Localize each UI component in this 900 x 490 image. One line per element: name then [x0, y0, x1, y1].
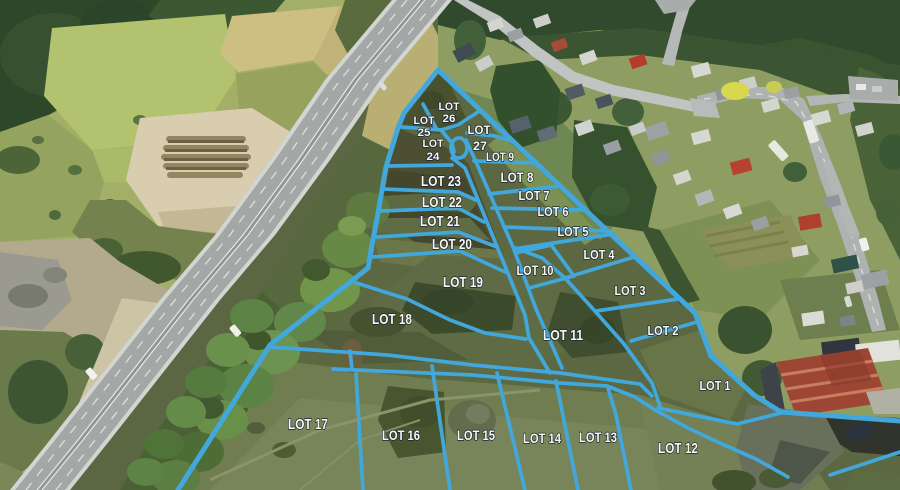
svg-text:LOT 9: LOT 9 — [486, 150, 514, 164]
svg-text:LOT 11: LOT 11 — [543, 327, 583, 344]
svg-text:LOT 19: LOT 19 — [443, 274, 483, 291]
svg-text:LOT: LOT — [423, 138, 444, 150]
svg-text:LOT 8: LOT 8 — [501, 169, 534, 185]
svg-text:LOT 17: LOT 17 — [288, 416, 328, 433]
svg-text:LOT 1: LOT 1 — [700, 378, 731, 393]
svg-text:LOT: LOT — [468, 123, 492, 137]
svg-text:LOT 20: LOT 20 — [432, 236, 472, 253]
svg-text:LOT 5: LOT 5 — [558, 224, 589, 239]
svg-text:LOT 22: LOT 22 — [422, 194, 462, 211]
svg-text:LOT 13: LOT 13 — [579, 429, 617, 445]
svg-text:LOT 6: LOT 6 — [538, 204, 569, 219]
svg-text:LOT: LOT — [414, 115, 435, 127]
svg-text:24: 24 — [427, 151, 441, 163]
svg-text:LOT 2: LOT 2 — [648, 323, 679, 338]
svg-text:LOT 3: LOT 3 — [615, 283, 646, 298]
svg-text:LOT 21: LOT 21 — [420, 213, 460, 230]
svg-text:LOT: LOT — [439, 101, 460, 113]
svg-text:LOT 10: LOT 10 — [517, 262, 554, 278]
svg-text:LOT 12: LOT 12 — [658, 440, 698, 457]
svg-text:26: 26 — [443, 113, 456, 125]
svg-text:LOT 18: LOT 18 — [372, 311, 412, 328]
svg-text:LOT 14: LOT 14 — [523, 430, 561, 446]
svg-text:LOT 7: LOT 7 — [519, 188, 550, 203]
svg-text:LOT 23: LOT 23 — [421, 173, 461, 190]
svg-text:LOT 4: LOT 4 — [584, 247, 616, 262]
svg-text:LOT 15: LOT 15 — [457, 427, 495, 443]
svg-text:LOT 16: LOT 16 — [382, 427, 420, 443]
